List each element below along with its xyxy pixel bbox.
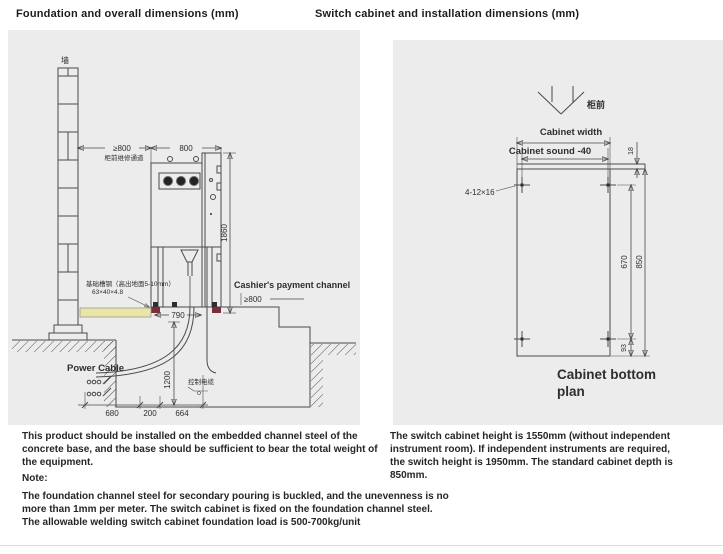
wall-column: 墙 bbox=[49, 55, 87, 340]
cashier-channel-dim: ≥800 bbox=[244, 295, 262, 304]
cabinet-spec-note: The switch cabinet height is 1550mm (wit… bbox=[390, 430, 720, 482]
foundation-drawing: 墙 bbox=[8, 30, 360, 425]
trench-dim-664: 664 bbox=[175, 409, 189, 418]
meter-dial-icon bbox=[190, 177, 199, 186]
power-cable-label: Power Cable bbox=[67, 363, 124, 374]
channel-steel-size: 63×40×4.8 bbox=[92, 289, 123, 296]
bottom-plan-caption-line1: Cabinet bottom bbox=[557, 367, 656, 382]
foundation-drawing-panel: 墙 bbox=[8, 30, 360, 425]
cashier-channel-label: Cashier's payment channel bbox=[234, 280, 350, 290]
door-knob-icon bbox=[194, 157, 199, 162]
trench-dim-680: 680 bbox=[105, 409, 119, 418]
bottom-plan-drawing: 柜前 Cabinet width Cabinet sound -40 18 4-… bbox=[393, 40, 723, 425]
cabinet-foot bbox=[151, 307, 160, 313]
base-width-dim: 790 bbox=[171, 311, 185, 320]
control-cable-run bbox=[207, 307, 216, 373]
right-section-title: Switch cabinet and installation dimensio… bbox=[315, 8, 579, 20]
meter-dial-icon bbox=[164, 177, 173, 186]
cashier-channel-steps bbox=[221, 307, 310, 343]
cabinet-foot bbox=[212, 307, 221, 313]
channel-steel-note: 基础槽钢（高出地面5-10mm） bbox=[86, 279, 175, 288]
trench-depth-dim: 1200 bbox=[163, 371, 172, 389]
foundation-note: The foundation channel steel for seconda… bbox=[22, 490, 492, 529]
cable-funnel bbox=[181, 250, 198, 262]
cabinet-width-dim: 800 bbox=[179, 144, 193, 153]
cabinet-width-label: Cabinet width bbox=[540, 127, 602, 138]
mounting-holes-label: 4-12×16 bbox=[465, 188, 495, 197]
front-marker-label: 柜前 bbox=[586, 99, 605, 110]
cabinet-depth-dim: 850 bbox=[635, 255, 644, 269]
wall-label: 墙 bbox=[61, 55, 69, 65]
channel-steel-highlight bbox=[80, 308, 151, 317]
cabinet-elevation bbox=[151, 153, 221, 313]
meter-dial-icon bbox=[177, 177, 186, 186]
aisle-dim-label: ≥800 bbox=[113, 144, 131, 153]
cabinet-height-dim: 1860 bbox=[220, 224, 229, 242]
aisle-note-label: 柜前维修通道 bbox=[105, 153, 145, 162]
ground-and-trench bbox=[12, 307, 356, 407]
bottom-plan-panel: 柜前 Cabinet width Cabinet sound -40 18 4-… bbox=[393, 40, 723, 425]
hole-span-dim: 670 bbox=[620, 255, 629, 269]
cabinet-depth-minus40-label: Cabinet sound -40 bbox=[509, 146, 591, 157]
rear-offset-dim: 93 bbox=[621, 344, 628, 352]
note-heading: Note: bbox=[22, 472, 48, 485]
bottom-plan-caption-line2: plan bbox=[557, 384, 585, 399]
front-direction-arrow-icon bbox=[538, 86, 584, 114]
cabinet-footprint bbox=[517, 169, 610, 356]
trench-dim-200: 200 bbox=[143, 409, 157, 418]
channel-steel-strip bbox=[517, 164, 645, 169]
installation-note: This product should be installed on the … bbox=[22, 430, 394, 469]
door-knob-icon bbox=[168, 157, 173, 162]
control-cable-label: 控制电缆 bbox=[188, 377, 215, 386]
bottom-divider bbox=[0, 545, 723, 546]
left-section-title: Foundation and overall dimensions (mm) bbox=[16, 8, 239, 20]
mounting-holes bbox=[514, 177, 616, 347]
steel-height-dim: 18 bbox=[628, 147, 635, 155]
